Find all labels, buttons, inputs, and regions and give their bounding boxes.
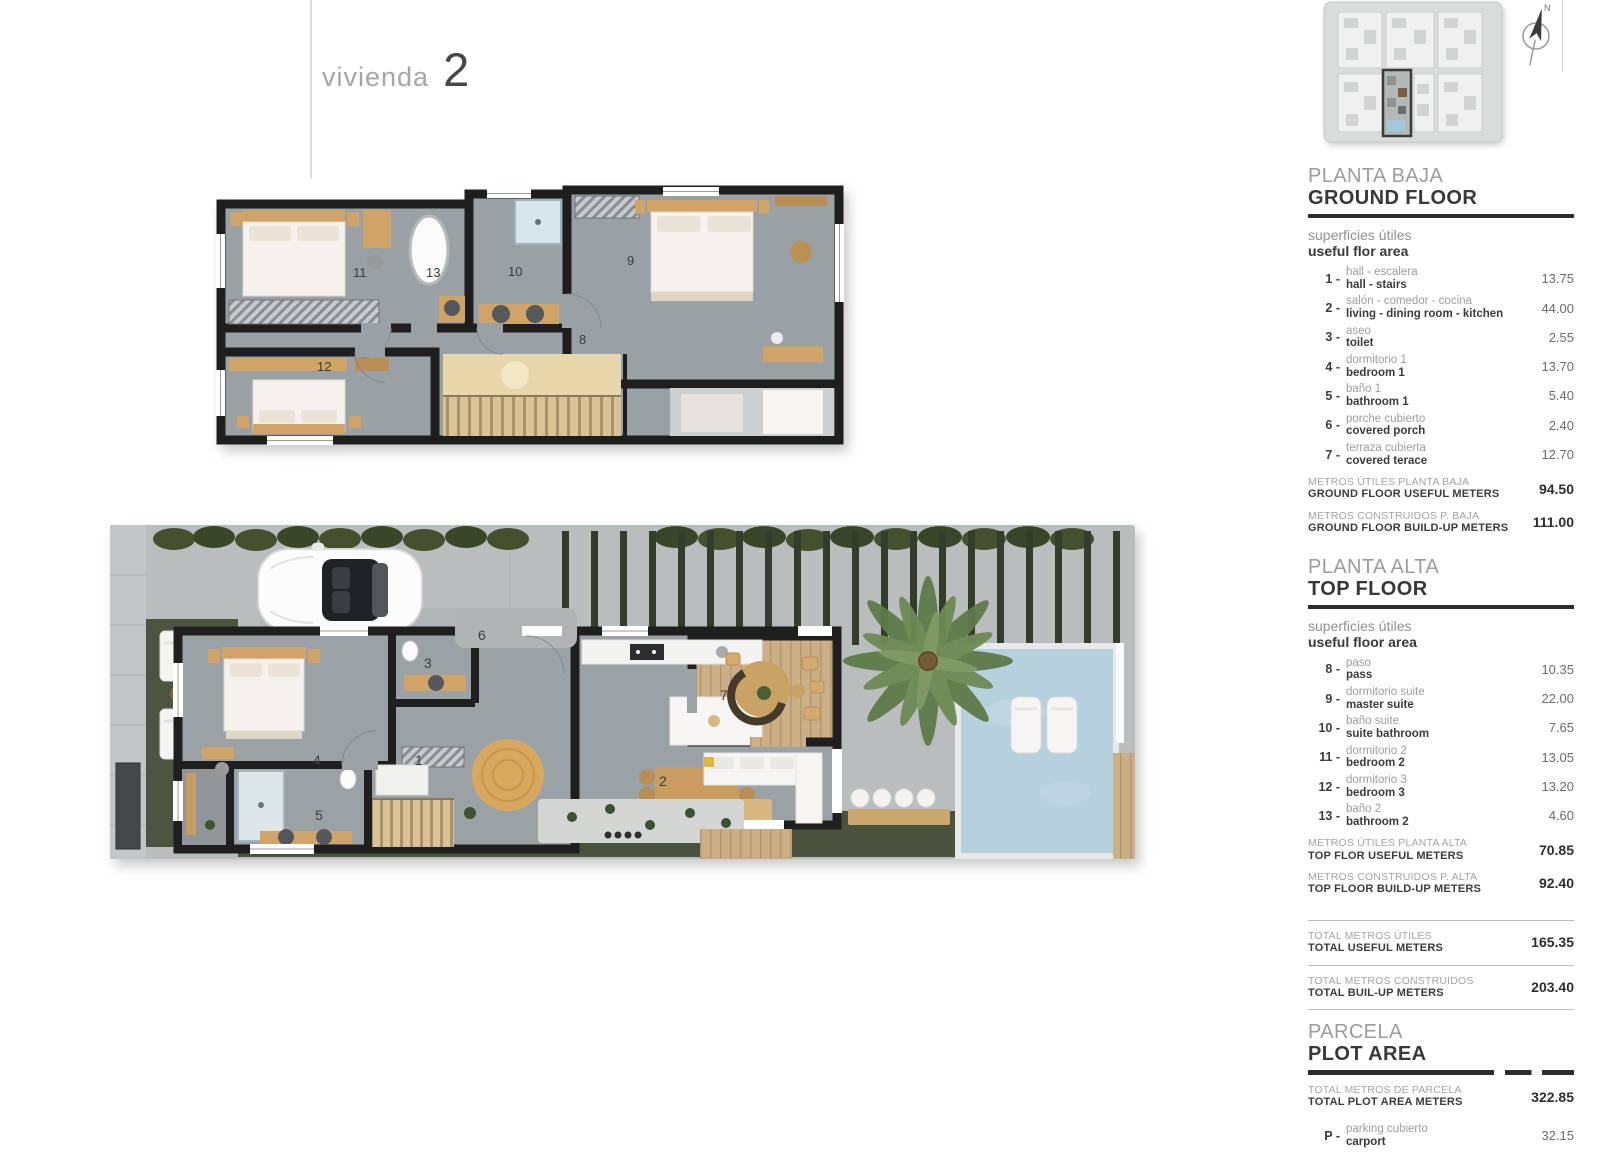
top-floor-plan: 11 13 10 9 8 12 bbox=[215, 188, 845, 450]
room-area-value: 12.70 bbox=[1524, 447, 1574, 462]
heading-en: TOP FLOOR bbox=[1308, 578, 1574, 600]
pool bbox=[955, 643, 1135, 859]
room-label-es: dormitorio 3 bbox=[1346, 774, 1524, 787]
grand-total-row: TOTAL METROS CONSTRUIDOSTOTAL BUIL-UP ME… bbox=[1308, 975, 1574, 1000]
room-number: 7 - bbox=[1308, 448, 1346, 462]
sub-es: superficies útiles bbox=[1308, 618, 1574, 634]
heading-en: GROUND FLOOR bbox=[1308, 187, 1574, 209]
room-area-value: 13.20 bbox=[1524, 779, 1574, 794]
room-label-es: salón - comedor - cocina bbox=[1346, 295, 1524, 308]
room-label-1: 1 bbox=[415, 752, 423, 768]
area-row: 1 - hall - escalerahall - stairs 13.75 bbox=[1308, 266, 1574, 291]
room-label-en: covered porch bbox=[1346, 425, 1524, 438]
room-label-8: 8 bbox=[579, 332, 586, 347]
room-label-en: toilet bbox=[1346, 337, 1524, 350]
room-number: 9 - bbox=[1308, 692, 1346, 706]
sub-es: superficies útiles bbox=[1308, 227, 1574, 243]
north-arrow-icon: N bbox=[1512, 0, 1562, 76]
palm-tree bbox=[843, 576, 1013, 746]
deck-steps bbox=[700, 829, 792, 859]
room-label-en: pass bbox=[1346, 669, 1524, 682]
room-label-en: living - dining room - kitchen bbox=[1346, 308, 1524, 321]
room-area-value: 5.40 bbox=[1524, 388, 1574, 403]
area-row: 4 - dormitorio 1bedroom 1 13.70 bbox=[1308, 354, 1574, 379]
room-area-value: 2.55 bbox=[1524, 330, 1574, 345]
area-table-sidebar: PLANTA BAJA GROUND FLOOR superficies úti… bbox=[1308, 166, 1574, 1152]
room-label-es: parking cubierto bbox=[1346, 1123, 1524, 1136]
room-area-value: 13.75 bbox=[1524, 271, 1574, 286]
room-label-13: 13 bbox=[426, 265, 440, 280]
grand-total-row: TOTAL METROS ÚTILESTOTAL USEFUL METERS 1… bbox=[1308, 930, 1574, 955]
room-number: 2 - bbox=[1308, 301, 1346, 315]
room-label-12: 12 bbox=[317, 359, 331, 374]
subtotal-es: METROS CONSTRUIDOS P. BAJA bbox=[1308, 510, 1518, 522]
room-label-11: 11 bbox=[353, 265, 367, 280]
room-label-en: bedroom 2 bbox=[1346, 757, 1524, 770]
top-floor-heading: PLANTA ALTA TOP FLOOR bbox=[1308, 557, 1574, 600]
room-area-value: 2.40 bbox=[1524, 418, 1574, 433]
area-row: 10 - baño suitesuite bathroom 7.65 bbox=[1308, 715, 1574, 740]
subtotal-en: TOP FLOR USEFUL METERS bbox=[1308, 850, 1518, 863]
ground-subheading: superficies útiles useful flor area bbox=[1308, 227, 1574, 259]
area-row: 9 - dormitorio suitemaster suite 22.00 bbox=[1308, 686, 1574, 711]
room-area-value: 7.65 bbox=[1524, 720, 1574, 735]
subtotal-es: METROS ÚTILES PLANTA ALTA bbox=[1308, 837, 1518, 849]
room-label-9: 9 bbox=[627, 253, 634, 268]
room-area-value: 44.00 bbox=[1524, 301, 1574, 316]
heading-en: PLOT AREA bbox=[1308, 1043, 1574, 1065]
corner-hairline bbox=[1562, 0, 1563, 72]
room-label-es: dormitorio 2 bbox=[1346, 745, 1524, 758]
carport-row: P - parking cubiertocarport 32.15 bbox=[1308, 1123, 1574, 1148]
room-label-10: 10 bbox=[508, 264, 522, 279]
highlighted-unit bbox=[1383, 70, 1411, 136]
divider bbox=[1308, 920, 1574, 921]
title-word: vivienda bbox=[322, 62, 429, 92]
subtotal-es: METROS ÚTILES PLANTA BAJA bbox=[1308, 476, 1518, 488]
room-area-value: 4.60 bbox=[1524, 808, 1574, 823]
subtotal-row: METROS CONSTRUIDOS P. ALTATOP FLOOR BUIL… bbox=[1308, 871, 1574, 896]
subtotal-en: GROUND FLOOR USEFUL METERS bbox=[1308, 488, 1518, 501]
subtotal-row: METROS ÚTILES PLANTA ALTATOP FLOR USEFUL… bbox=[1308, 837, 1574, 862]
room-label-en: suite bathroom bbox=[1346, 728, 1524, 741]
room-number: 10 - bbox=[1308, 721, 1346, 735]
room-label-es: hall - escalera bbox=[1346, 266, 1524, 279]
area-row: 11 - dormitorio 2bedroom 2 13.05 bbox=[1308, 745, 1574, 770]
plot-total-es: TOTAL METROS DE PARCELA bbox=[1308, 1084, 1518, 1096]
heading-es: PLANTA ALTA bbox=[1308, 557, 1574, 578]
page-title: vivienda2 bbox=[322, 42, 469, 97]
area-row: 6 - porche cubiertocovered porch 2.40 bbox=[1308, 413, 1574, 438]
room-label-es: baño 1 bbox=[1346, 383, 1524, 396]
room-label-4: 4 bbox=[313, 752, 321, 768]
room-label-7: 7 bbox=[720, 687, 728, 703]
title-accent-line bbox=[310, 0, 312, 178]
subtotal-value: 92.40 bbox=[1518, 875, 1574, 891]
area-row: 2 - salón - comedor - cocinaliving - din… bbox=[1308, 295, 1574, 320]
total-value: 165.35 bbox=[1518, 934, 1574, 950]
room-label-en: bathroom 2 bbox=[1346, 816, 1524, 829]
sub-en: useful flor area bbox=[1308, 243, 1574, 259]
area-row: 3 - aseotoilet 2.55 bbox=[1308, 325, 1574, 350]
room-label-en: hall - stairs bbox=[1346, 279, 1524, 292]
room-number: 8 - bbox=[1308, 662, 1346, 676]
floorplan-sheet: { "page": { "title_label": "vivienda", "… bbox=[0, 0, 1600, 1024]
subtotal-en: GROUND FLOOR BUILD-UP METERS bbox=[1308, 522, 1518, 535]
total-en: TOTAL USEFUL METERS bbox=[1308, 942, 1518, 955]
room-label-en: master suite bbox=[1346, 699, 1524, 712]
car bbox=[258, 543, 422, 637]
heading-rule-dashed bbox=[1308, 1070, 1574, 1075]
plot-total-row: TOTAL METROS DE PARCELATOTAL PLOT AREA M… bbox=[1308, 1084, 1574, 1109]
ground-floor-heading: PLANTA BAJA GROUND FLOOR bbox=[1308, 166, 1574, 209]
room-label-es: paso bbox=[1346, 657, 1524, 670]
room-number: 12 - bbox=[1308, 780, 1346, 794]
subtotal-es: METROS CONSTRUIDOS P. ALTA bbox=[1308, 871, 1518, 883]
room-number: 6 - bbox=[1308, 418, 1346, 432]
room-label-es: dormitorio 1 bbox=[1346, 354, 1524, 367]
heading-rule bbox=[1308, 214, 1574, 218]
room-number: 1 - bbox=[1308, 272, 1346, 286]
stairs bbox=[443, 354, 625, 436]
room-area-value: 13.05 bbox=[1524, 750, 1574, 765]
ground-floor-plan: 1 2 3 4 5 6 7 bbox=[110, 513, 1135, 861]
room-label-es: terraza cubierta bbox=[1346, 442, 1524, 455]
heading-es: PARCELA bbox=[1308, 1022, 1574, 1043]
total-es: TOTAL METROS ÚTILES bbox=[1308, 930, 1518, 942]
room-area-value: 22.00 bbox=[1524, 691, 1574, 706]
divider bbox=[1308, 1009, 1574, 1010]
room-number: 5 - bbox=[1308, 389, 1346, 403]
total-en: TOTAL BUIL-UP METERS bbox=[1308, 987, 1518, 1000]
north-label: N bbox=[1544, 3, 1551, 13]
room-label-es: aseo bbox=[1346, 325, 1524, 338]
area-row: 5 - baño 1bathroom 1 5.40 bbox=[1308, 383, 1574, 408]
room-number: 4 - bbox=[1308, 360, 1346, 374]
room-label-en: bedroom 1 bbox=[1346, 367, 1524, 380]
subtotal-value: 111.00 bbox=[1518, 514, 1574, 530]
area-row: 12 - dormitorio 3bedroom 3 13.20 bbox=[1308, 774, 1574, 799]
sub-en: useful floor area bbox=[1308, 634, 1574, 650]
heading-es: PLANTA BAJA bbox=[1308, 166, 1574, 187]
plot-total-value: 322.85 bbox=[1518, 1089, 1574, 1105]
room-label-en: bathroom 1 bbox=[1346, 396, 1524, 409]
total-es: TOTAL METROS CONSTRUIDOS bbox=[1308, 975, 1518, 987]
area-row: 13 - baño 2bathroom 2 4.60 bbox=[1308, 803, 1574, 828]
subtotal-value: 70.85 bbox=[1518, 842, 1574, 858]
room-label-en: bedroom 3 bbox=[1346, 787, 1524, 800]
room-label-en: covered terace bbox=[1346, 455, 1524, 468]
room-area-value: 32.15 bbox=[1524, 1128, 1574, 1143]
subtotal-en: TOP FLOOR BUILD-UP METERS bbox=[1308, 883, 1518, 896]
room-number: P - bbox=[1308, 1129, 1346, 1143]
room-number: 11 - bbox=[1308, 750, 1346, 764]
area-row: 8 - pasopass 10.35 bbox=[1308, 657, 1574, 682]
plot-area-heading: PARCELA PLOT AREA bbox=[1308, 1022, 1574, 1065]
room-number: 3 - bbox=[1308, 330, 1346, 344]
subtotal-row: METROS ÚTILES PLANTA BAJAGROUND FLOOR US… bbox=[1308, 476, 1574, 501]
room-label-6: 6 bbox=[478, 627, 486, 643]
room-label-5: 5 bbox=[315, 807, 323, 823]
room-label-es: baño suite bbox=[1346, 715, 1524, 728]
title-number: 2 bbox=[443, 43, 469, 96]
room-label-es: dormitorio suite bbox=[1346, 686, 1524, 699]
room-number: 13 - bbox=[1308, 809, 1346, 823]
area-row: 7 - terraza cubiertacovered terace 12.70 bbox=[1308, 442, 1574, 467]
room-label-es: baño 2 bbox=[1346, 803, 1524, 816]
room-area-value: 10.35 bbox=[1524, 662, 1574, 677]
site-key-plan bbox=[1320, 0, 1512, 148]
room-label-en: carport bbox=[1346, 1136, 1524, 1149]
site-plot bbox=[1324, 2, 1502, 142]
divider bbox=[1308, 965, 1574, 966]
heading-rule bbox=[1308, 605, 1574, 609]
total-value: 203.40 bbox=[1518, 979, 1574, 995]
subtotal-value: 94.50 bbox=[1518, 481, 1574, 497]
room-area-value: 13.70 bbox=[1524, 359, 1574, 374]
room-label-es: porche cubierto bbox=[1346, 413, 1524, 426]
room-label-3: 3 bbox=[424, 655, 432, 671]
plot-total-en: TOTAL PLOT AREA METERS bbox=[1308, 1096, 1518, 1109]
room-label-2: 2 bbox=[659, 773, 667, 789]
outdoor-patio-corner bbox=[182, 769, 226, 845]
top-subheading: superficies útiles useful floor area bbox=[1308, 618, 1574, 650]
subtotal-row: METROS CONSTRUIDOS P. BAJAGROUND FLOOR B… bbox=[1308, 510, 1574, 535]
